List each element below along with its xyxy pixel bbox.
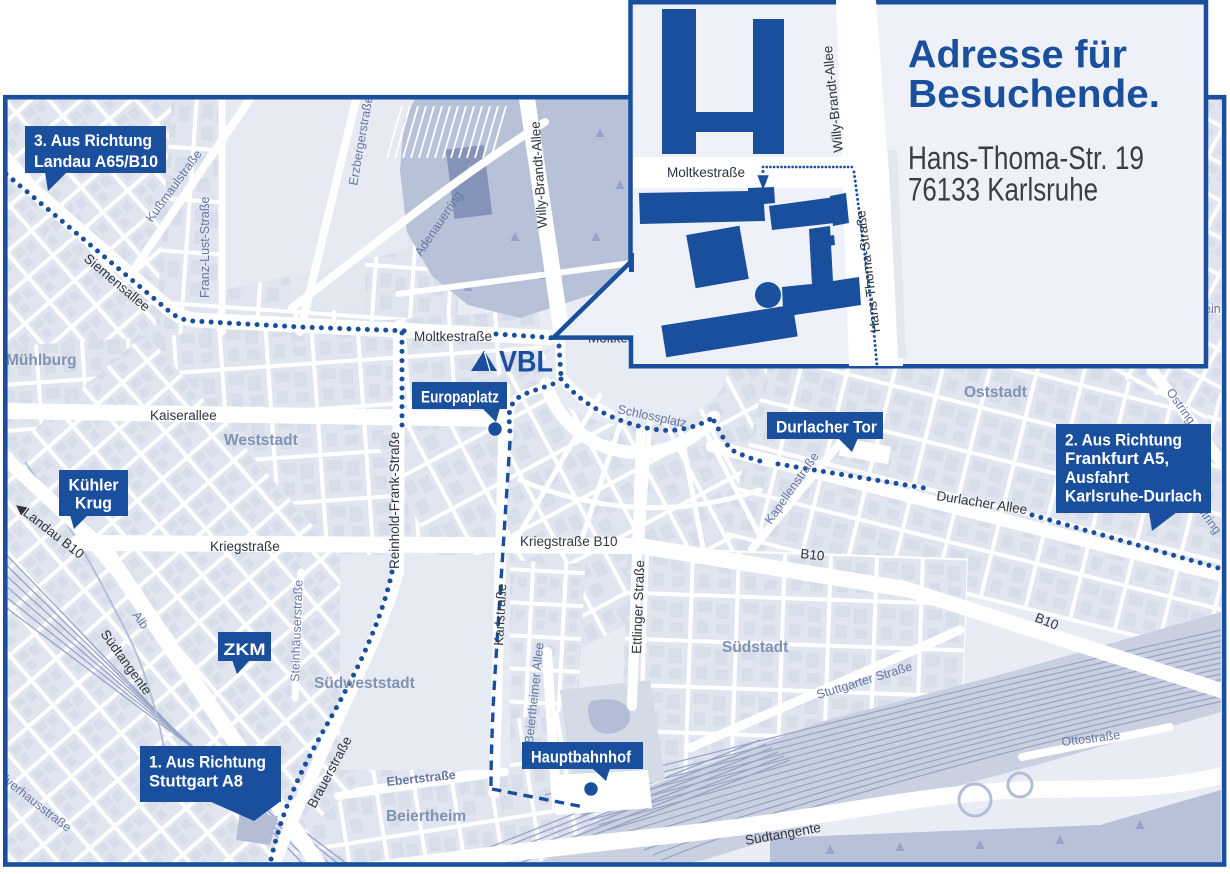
svg-text:Moltkestraße: Moltkestraße (667, 165, 745, 180)
svg-text:Ausfahrt: Ausfahrt (1065, 469, 1129, 487)
svg-text:Franz-Lust-Straße: Franz-Lust-Straße (198, 197, 212, 298)
svg-text:Kaiserallee: Kaiserallee (150, 408, 217, 423)
svg-text:Kühler: Kühler (69, 477, 120, 495)
svg-text:Kriegstraße: Kriegstraße (210, 539, 280, 554)
svg-text:VBL: VBL (499, 346, 553, 379)
svg-text:Südweststadt: Südweststadt (314, 675, 415, 692)
svg-text:Beiertheim: Beiertheim (386, 808, 466, 825)
svg-text:Weststadt: Weststadt (224, 432, 298, 449)
svg-text:Südstadt: Südstadt (722, 639, 788, 656)
svg-text:Kriegstraße B10: Kriegstraße B10 (520, 534, 618, 549)
svg-text:Stuttgart A8: Stuttgart A8 (149, 773, 243, 791)
svg-text:Moltkestraße: Moltkestraße (414, 329, 492, 344)
svg-text:Landau A65/B10: Landau A65/B10 (34, 153, 158, 171)
svg-text:2. Aus Richtung: 2. Aus Richtung (1065, 432, 1182, 450)
svg-text:1. Aus Richtung: 1. Aus Richtung (149, 754, 266, 772)
svg-text:Besuchende.: Besuchende. (908, 73, 1160, 116)
svg-text:76133 Karlsruhe: 76133 Karlsruhe (908, 172, 1098, 208)
svg-text:B10: B10 (800, 546, 825, 563)
svg-text:Hauptbahnhof: Hauptbahnhof (531, 749, 631, 767)
svg-text:3. Aus Richtung: 3. Aus Richtung (34, 132, 152, 150)
svg-text:Reinhold-Frank-Straße: Reinhold-Frank-Straße (387, 432, 402, 569)
svg-text:Krug: Krug (75, 495, 112, 513)
svg-text:Mühlburg: Mühlburg (6, 352, 77, 369)
svg-text:Frankfurt A5,: Frankfurt A5, (1065, 450, 1169, 468)
svg-text:ZKM: ZKM (224, 641, 266, 659)
svg-text:Karlsruhe-Durlach: Karlsruhe-Durlach (1065, 488, 1202, 506)
svg-text:Durlacher Tor: Durlacher Tor (776, 419, 878, 437)
svg-text:Adresse für: Adresse für (908, 34, 1127, 77)
svg-text:Oststadt: Oststadt (964, 384, 1027, 401)
svg-text:Europaplatz: Europaplatz (421, 389, 499, 407)
